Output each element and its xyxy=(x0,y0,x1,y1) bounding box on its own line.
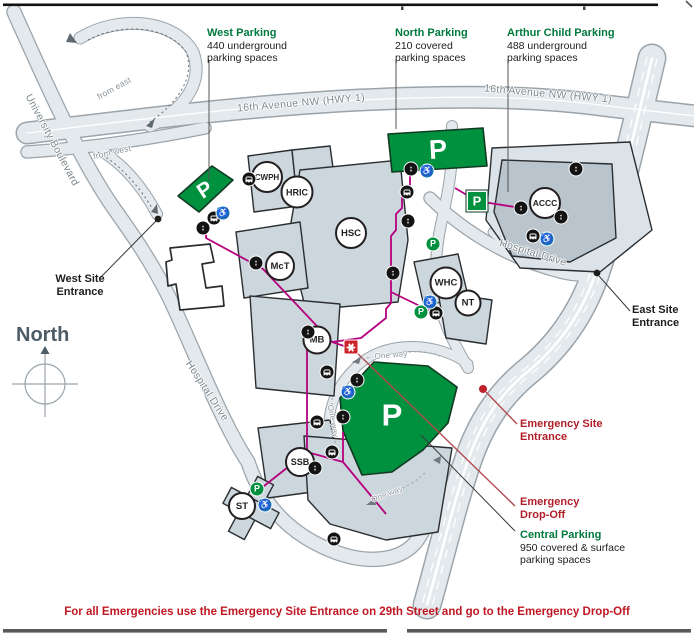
emergency-site-entrance-label: Emergency Site Entrance xyxy=(520,418,603,443)
wheelchair-accessible-icon: ♿ xyxy=(258,498,273,513)
north-parking-line2: parking spaces xyxy=(395,52,468,65)
building-label-hsc: HSC xyxy=(335,217,367,249)
emergency-department-icon xyxy=(344,340,359,355)
bus-glyph xyxy=(329,449,336,455)
wheelchair-glyph: ♿ xyxy=(421,167,432,176)
wheelchair-glyph: ♿ xyxy=(259,501,270,510)
bus-stop-icon xyxy=(310,415,325,430)
elevator-icon: ↕ xyxy=(386,266,401,281)
bus-stop-icon xyxy=(320,365,335,380)
building-label-st: ST xyxy=(228,492,256,520)
north-parking-p: P xyxy=(428,136,447,164)
elevator-glyph: ↕ xyxy=(574,165,579,174)
elevator-glyph: ↕ xyxy=(313,464,318,473)
emergency-site-line1: Emergency Site xyxy=(520,418,603,431)
elevator-icon: ↕ xyxy=(404,162,419,177)
p-glyph: P xyxy=(473,194,482,209)
p-glyph: P xyxy=(254,485,260,494)
arthur-child-parking-title: Arthur Child Parking xyxy=(507,27,615,40)
west-parking-title: West Parking xyxy=(207,27,287,40)
elevator-glyph: ↕ xyxy=(254,259,259,268)
bus-stop-icon xyxy=(526,229,541,244)
arthur-child-line2: parking spaces xyxy=(507,52,615,65)
elevator-glyph: ↕ xyxy=(391,269,396,278)
p-glyph: P xyxy=(418,308,424,317)
emergency-dropoff-label: Emergency Drop-Off xyxy=(520,496,579,521)
accc-code: ACCC xyxy=(533,198,558,208)
elevator-glyph: ↕ xyxy=(409,165,414,174)
elevator-icon: ↕ xyxy=(196,221,211,236)
cwph-code: CWPH xyxy=(255,173,279,182)
west-parking-line2: parking spaces xyxy=(207,52,287,65)
emergency-dropoff-line1: Emergency xyxy=(520,496,579,509)
wheelchair-accessible-icon: ♿ xyxy=(216,206,231,221)
parking-spot-icon: P xyxy=(426,237,441,252)
west-parking-label: West Parking 440 underground parking spa… xyxy=(207,27,287,65)
bus-stop-icon xyxy=(327,532,342,547)
central-parking-label: Central Parking 950 covered & surface pa… xyxy=(520,529,625,567)
east-site-line2: Entrance xyxy=(632,317,679,330)
elevator-glyph: ↕ xyxy=(306,328,311,337)
arthur-child-parking-label: Arthur Child Parking 488 underground par… xyxy=(507,27,615,65)
bus-stop-icon xyxy=(325,445,340,460)
p-glyph: P xyxy=(430,240,436,249)
arthur-child-parkade-icon: P xyxy=(466,190,489,213)
west-site-line2: Entrance xyxy=(55,286,104,299)
wheelchair-accessible-icon: ♿ xyxy=(420,164,435,179)
parking-spot-icon: P xyxy=(414,305,429,320)
bus-stop-icon xyxy=(400,185,415,200)
mct-code: McT xyxy=(271,261,290,272)
wheelchair-glyph: ♿ xyxy=(424,298,435,307)
north-parking-title: North Parking xyxy=(395,27,468,40)
elevator-icon: ↕ xyxy=(569,162,584,177)
elevator-glyph: ↕ xyxy=(341,413,346,422)
emergency-instructions-note: For all Emergencies use the Emergency Si… xyxy=(64,606,630,618)
bus-glyph xyxy=(404,189,411,195)
wheelchair-accessible-icon: ♿ xyxy=(540,232,555,247)
north-parking-line1: 210 covered xyxy=(395,40,468,53)
emergency-dropoff-line2: Drop-Off xyxy=(520,509,579,522)
wheelchair-glyph: ♿ xyxy=(541,235,552,244)
west-site-line1: West Site xyxy=(55,273,104,286)
elevator-icon: ↕ xyxy=(301,325,316,340)
emergency-site-line2: Entrance xyxy=(520,431,603,444)
elevator-icon: ↕ xyxy=(554,210,569,225)
hric-code: HRIC xyxy=(286,187,308,197)
east-site-entrance-label: East Site Entrance xyxy=(632,304,679,329)
ssb-code: SSB xyxy=(291,457,310,467)
whc-code: WHC xyxy=(435,278,458,289)
st-code: ST xyxy=(236,501,248,512)
wheelchair-glyph: ♿ xyxy=(342,388,353,397)
west-site-entrance-label: West Site Entrance xyxy=(55,273,104,298)
compass-north-label: North xyxy=(16,324,69,347)
hospital-campus-map: P P P West Parking 440 underground parki… xyxy=(0,0,694,634)
bus-stop-icon xyxy=(242,172,257,187)
wheelchair-glyph: ♿ xyxy=(217,209,228,218)
elevator-icon: ↕ xyxy=(336,410,351,425)
central-parking-line1: 950 covered & surface xyxy=(520,542,625,555)
bus-glyph xyxy=(433,310,440,316)
building-label-nt: NT xyxy=(455,290,482,317)
bus-glyph xyxy=(331,536,338,542)
elevator-glyph: ↕ xyxy=(201,224,206,233)
elevator-icon: ↕ xyxy=(514,201,529,216)
parking-spot-icon: P xyxy=(250,482,265,497)
compass xyxy=(12,346,78,417)
elevator-icon: ↕ xyxy=(401,214,416,229)
bus-glyph xyxy=(530,233,537,239)
building-label-mct: McT xyxy=(265,251,295,281)
elevator-glyph: ↕ xyxy=(559,213,564,222)
north-parking-label: North Parking 210 covered parking spaces xyxy=(395,27,468,65)
east-site-line1: East Site xyxy=(632,304,679,317)
elevator-icon: ↕ xyxy=(308,461,323,476)
nt-code: NT xyxy=(462,298,475,309)
elevator-glyph: ↕ xyxy=(406,217,411,226)
arthur-child-line1: 488 underground xyxy=(507,40,615,53)
central-parking-line2: parking spaces xyxy=(520,554,625,567)
bus-glyph xyxy=(246,176,253,182)
elevator-icon: ↕ xyxy=(249,256,264,271)
hsc-code: HSC xyxy=(341,228,361,239)
bus-glyph xyxy=(314,419,321,425)
wheelchair-accessible-icon: ♿ xyxy=(341,385,356,400)
west-parking-line1: 440 underground xyxy=(207,40,287,53)
central-parking-p: P xyxy=(382,400,403,431)
elevator-glyph: ↕ xyxy=(519,204,524,213)
elevator-glyph: ↕ xyxy=(355,376,360,385)
bus-glyph xyxy=(324,369,331,375)
central-parking-title: Central Parking xyxy=(520,529,625,542)
building-label-hric: HRIC xyxy=(281,176,314,209)
